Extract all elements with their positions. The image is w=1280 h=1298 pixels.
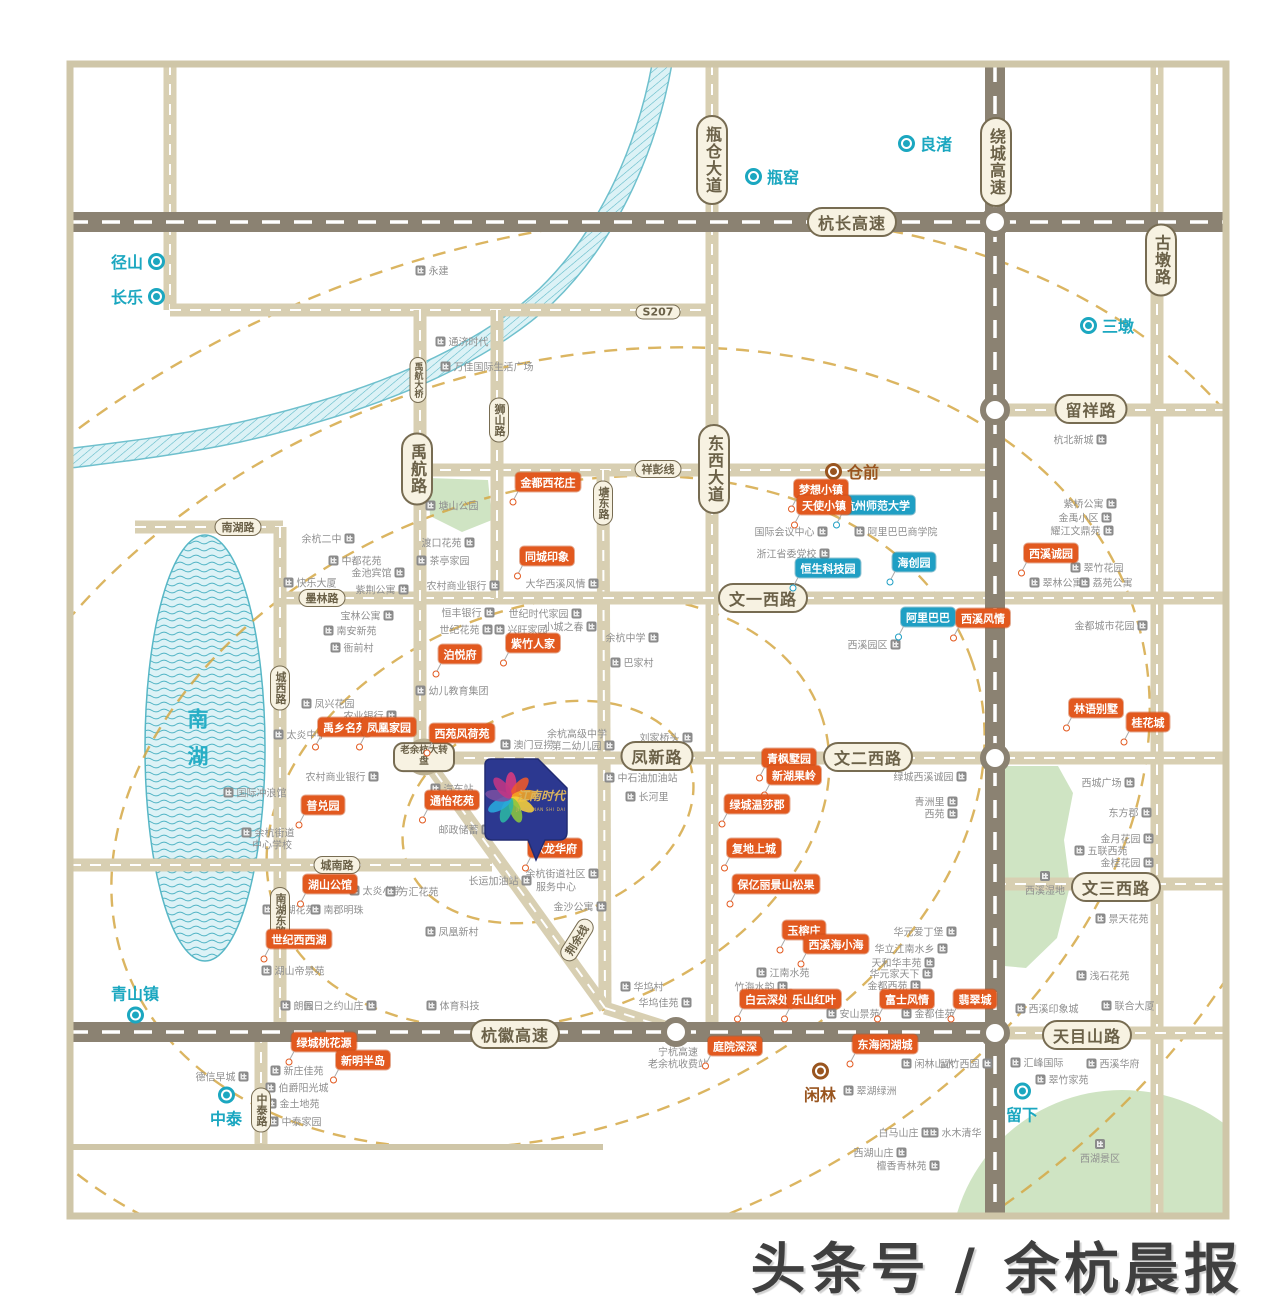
building-icon [386, 886, 396, 896]
town-name: 长乐 [111, 284, 143, 308]
poi-name: 第二幼儿园 [552, 738, 602, 753]
poi-name: 渡口花苑 [422, 535, 462, 550]
poi-label: 华坞村 [621, 979, 664, 994]
road-label: 塘东路 [593, 481, 613, 526]
poi-label: 西苑 [925, 806, 958, 821]
poi-label: 巴家村 [611, 655, 654, 670]
building-icon [384, 610, 394, 620]
building-icon [572, 608, 582, 618]
poi-label: 绿城西溪诚园 [894, 769, 967, 784]
poi-label: 紫桥公寓 [1064, 496, 1117, 511]
building-icon [683, 732, 693, 742]
poi-name: 翠林公寓 [1043, 575, 1083, 590]
poi-label: 东方郡 [1109, 805, 1152, 820]
community-label: 乐山红叶 [787, 990, 841, 1009]
road-label: S207 [636, 305, 681, 320]
building-icon [416, 685, 426, 695]
building-icon [395, 567, 405, 577]
town-name: 三墩 [1102, 313, 1134, 337]
building-icon [682, 997, 692, 1007]
poi-name: 老余杭收费站 [648, 1056, 708, 1071]
building-icon [929, 1127, 939, 1137]
community-label: 天使小镇 [797, 496, 851, 515]
poi-name: 永建 [429, 263, 449, 278]
building-icon [757, 967, 767, 977]
road-label: 杭徽高速 [470, 1019, 560, 1049]
road-label: 绕城高速 [980, 117, 1012, 207]
poi-name: 凤凰新村 [439, 924, 479, 939]
poi-label: 金土地苑 [267, 1096, 320, 1111]
poi-name: 浅石花苑 [1090, 968, 1130, 983]
community-label: 普兑园 [302, 796, 345, 815]
poi-name: 小城之春 [544, 619, 584, 634]
poi-name: 阿里巴巴商学院 [868, 524, 938, 539]
poi-name: 服务中心 [536, 879, 576, 894]
road-label: 中泰路 [251, 1088, 271, 1133]
town-label: 瓶窑 [745, 164, 799, 188]
building-icon [271, 1065, 281, 1075]
building-icon [399, 584, 409, 594]
building-icon [649, 632, 659, 642]
poi-label: 金池宾馆 [352, 565, 405, 580]
poi-name: 巴家村 [624, 655, 654, 670]
poi-name: 景天花苑 [1109, 911, 1149, 926]
building-icon [855, 526, 865, 536]
building-icon [589, 578, 599, 588]
community-label: 绿城温莎郡 [725, 795, 790, 814]
poi-name: 方汇花苑 [399, 884, 439, 899]
poi-name: 檀香青林苑 [877, 1158, 927, 1173]
town-label: 青山镇 [111, 981, 159, 1024]
community-label: 林语别墅 [1069, 699, 1123, 718]
building-icon [324, 625, 334, 635]
building-icon [948, 808, 958, 818]
poi-label: 耀江文鼎苑 [1051, 523, 1114, 538]
poi-name: 假日之约山庄 [304, 998, 364, 1013]
town-dot-icon [1080, 317, 1097, 334]
poi-name: 联合大厦 [1115, 998, 1155, 1013]
poi-name: 华元爱丁堡 [894, 924, 944, 939]
community-label: 新湖果岭 [767, 766, 821, 785]
poi-name: 金桂花园 [1101, 855, 1141, 870]
building-icon [820, 548, 830, 558]
building-icon [1138, 620, 1148, 630]
poi-label: 翠林公寓 [1030, 575, 1083, 590]
community-label: 金都西花庄 [516, 473, 581, 492]
building-icon [597, 901, 607, 911]
building-icon [621, 981, 631, 991]
poi-name: 余杭中学 [606, 630, 646, 645]
poi-label: 中心学校 [252, 837, 292, 852]
poi-label: 金都城市花园 [1075, 618, 1148, 633]
poi-name: 水木清华 [942, 1125, 982, 1140]
road-label: 东西大道 [698, 424, 730, 514]
road-label: 文三西路 [1071, 872, 1161, 902]
road-label: 狮山路 [489, 398, 509, 443]
poi-label: 伯爵阳光城 [266, 1080, 329, 1095]
project-name: 江南时代 [517, 789, 567, 803]
watermark: 头条号 / 余杭晨报 [0, 1224, 1244, 1298]
poi-name: 西城广场 [1082, 775, 1122, 790]
poi-name: 南郡明珠 [324, 902, 364, 917]
label-layer: 杭长高速S207绕城高速瓶仓大道古墩路留祥路禹航大桥禹航路狮山路祥彭线东西大道塘… [0, 0, 1280, 1298]
community-label: 东海闲湖城 [853, 1035, 918, 1054]
building-icon [1075, 845, 1085, 855]
community-label: 保亿丽景山松果 [733, 875, 820, 894]
building-icon [495, 624, 505, 634]
poi-name: 中石油加油站 [618, 770, 678, 785]
building-icon [490, 580, 500, 590]
poi-name: 衙前村 [344, 640, 374, 655]
building-icon [1102, 512, 1112, 522]
poi-label: 幼儿教育集团 [416, 683, 489, 698]
building-icon [1107, 498, 1117, 508]
poi-label: 中泰家园 [269, 1114, 322, 1129]
road-label: 荆余线 [557, 915, 597, 964]
poi-label: 白马山庄 [879, 1125, 932, 1140]
town-label: 中泰 [210, 1087, 242, 1130]
poi-label: 西溪印象城 [1016, 1001, 1079, 1016]
building-icon [329, 555, 339, 565]
building-icon [436, 336, 446, 346]
poi-label: 水木清华 [929, 1125, 982, 1140]
poi-name: 邮政储蓄 [439, 822, 479, 837]
building-icon [948, 796, 958, 806]
road-label: 墨林路 [299, 589, 346, 607]
road-label: 杭长高速 [807, 207, 897, 237]
building-icon [427, 1000, 437, 1010]
poi-name: 农村商业银行 [427, 578, 487, 593]
poi-name: 农村商业银行 [306, 769, 366, 784]
poi-label: 檀香青林苑 [877, 1158, 940, 1173]
town-name: 良渚 [920, 131, 952, 155]
poi-name: 华坞佳苑 [639, 995, 679, 1010]
project-subtitle: JIANG NAN SHI DAI [515, 807, 565, 812]
poi-label: 方汇花苑 [386, 884, 439, 899]
building-icon [1125, 777, 1135, 787]
road-label: 瓶仓大道 [696, 115, 728, 205]
poi-label: 渡口花苑 [422, 535, 475, 550]
poi-label: 小城之春 [544, 619, 597, 634]
poi-name: 金池宾馆 [352, 565, 392, 580]
poi-label: 浅石花苑 [1077, 968, 1130, 983]
road-label: 祥彭线 [635, 460, 682, 478]
building-icon [938, 943, 948, 953]
road-label: 凤新路 [620, 741, 693, 771]
building-icon [1096, 913, 1106, 923]
poi-name: 西溪华府 [1100, 1056, 1140, 1071]
poi-name: 华坞村 [634, 979, 664, 994]
poi-name: 体育科技 [440, 998, 480, 1013]
project-marker: 江南时代 JIANG NAN SHI DAI [483, 756, 575, 866]
poi-label: 体育科技 [427, 998, 480, 1013]
town-name: 仓前 [847, 459, 879, 483]
poi-name: 湖山帝景苑 [275, 963, 325, 978]
town-name: 中泰 [210, 1106, 242, 1130]
community-label: 翡翠城 [954, 990, 997, 1009]
poi-name: 杭北新城 [1054, 432, 1094, 447]
poi-name: 中心学校 [252, 837, 292, 852]
poi-name: 通济时代 [449, 334, 489, 349]
town-label: 良渚 [898, 131, 952, 155]
building-icon [611, 657, 621, 667]
poi-label: 翠竹家苑 [1036, 1072, 1089, 1087]
poi-name: 西溪湿地 [1025, 882, 1065, 897]
building-icon [302, 698, 312, 708]
poi-label: 汇峰国际 [1011, 1055, 1064, 1070]
building-icon [417, 555, 427, 565]
poi-name: 江南水苑 [770, 965, 810, 980]
poi-label: 留竹西园 [940, 1056, 993, 1071]
poi-name: 恒丰银行 [442, 605, 482, 620]
building-icon [1144, 857, 1154, 867]
building-icon [224, 787, 234, 797]
poi-name: 国际会议中心 [755, 524, 815, 539]
poi-name: 塘山公园 [439, 498, 479, 513]
poi-label: 荔苑公寓 [1080, 575, 1133, 590]
poi-label: 农村商业银行 [306, 769, 379, 784]
poi-name: 长河里 [639, 789, 669, 804]
poi-label: 恒丰银行 [442, 605, 495, 620]
poi-label: 德信早城 [196, 1069, 249, 1084]
town-label: 三墩 [1080, 313, 1134, 337]
poi-label: 阿里巴巴商学院 [855, 524, 938, 539]
building-icon [947, 926, 957, 936]
poi-label: 长河里 [626, 789, 669, 804]
town-dot-icon [217, 1087, 234, 1104]
poi-label: 凤凰新村 [426, 924, 479, 939]
poi-name: 大华西溪风情 [526, 576, 586, 591]
poi-label: 快乐大厦 [284, 575, 337, 590]
building-icon [589, 868, 599, 878]
town-label: 闲林 [804, 1063, 836, 1106]
building-icon [1087, 1058, 1097, 1068]
community-label: 新明半岛 [336, 1051, 390, 1070]
building-icon [262, 965, 272, 975]
town-dot-icon [148, 288, 165, 305]
poi-name: 金都城市花园 [1075, 618, 1135, 633]
building-icon [626, 791, 636, 801]
building-icon [441, 361, 451, 371]
poi-label: 西溪园区 [848, 637, 901, 652]
community-label: 庭院深深 [708, 1037, 762, 1056]
building-icon [501, 739, 511, 749]
poi-label: 紫荆公寓 [356, 582, 409, 597]
poi-label: 茶亭家园 [417, 553, 470, 568]
landmark-label: 恒生科技园 [796, 559, 861, 578]
town-label: 长乐 [111, 284, 165, 308]
poi-name: 西溪印象城 [1029, 1001, 1079, 1016]
town-name: 青山镇 [111, 981, 159, 1005]
building-icon [1102, 1000, 1112, 1010]
town-label: 径山 [111, 249, 165, 273]
building-icon [605, 740, 615, 750]
poi-label: 南郡明珠 [311, 902, 364, 917]
poi-name: 翠湖绿洲 [857, 1083, 897, 1098]
poi-name: 白马山庄 [879, 1125, 919, 1140]
building-icon [483, 624, 493, 634]
poi-label: 万佳国际生活广场 [441, 359, 534, 374]
community-label: 西溪海小海 [804, 935, 869, 954]
poi-name: 翠竹花园 [1084, 560, 1124, 575]
building-icon [369, 771, 379, 781]
poi-name: 紫荆公寓 [356, 582, 396, 597]
poi-name: 快乐大厦 [297, 575, 337, 590]
poi-label: 华坞佳苑 [639, 995, 692, 1010]
road-label: 城西路 [270, 666, 290, 711]
poi-name: 国际冲浪馆 [237, 785, 287, 800]
poi-name: 世纪花苑 [440, 622, 480, 637]
poi-name: 耀江文鼎苑 [1051, 523, 1101, 538]
building-icon [911, 980, 921, 990]
poi-label: 世纪花苑 [440, 622, 493, 637]
poi-label: 通济时代 [436, 334, 489, 349]
building-icon [897, 1147, 907, 1157]
community-label: 绿城桃花源 [292, 1033, 357, 1052]
road-label: 城南路 [314, 856, 361, 874]
community-label: 西溪风情 [956, 609, 1010, 628]
town-name: 径山 [111, 249, 143, 273]
poi-label: 老余杭收费站 [648, 1056, 708, 1071]
building-icon [281, 1000, 291, 1010]
community-label: 凤凰家园 [362, 718, 416, 737]
building-icon [242, 827, 252, 837]
building-icon [983, 1058, 993, 1068]
building-icon [844, 1085, 854, 1095]
poi-name: 德信早城 [196, 1069, 236, 1084]
road-label: 古墩路 [1145, 224, 1177, 297]
building-icon [957, 771, 967, 781]
poi-name: 西溪园区 [848, 637, 888, 652]
town-dot-icon [148, 253, 165, 270]
building-icon [465, 537, 475, 547]
building-icon [1016, 1003, 1026, 1013]
road-label: 文二西路 [823, 742, 913, 772]
poi-label: 中石油加油站 [605, 770, 678, 785]
landmark-label: 海创园 [893, 553, 936, 572]
building-icon [239, 1071, 249, 1081]
poi-label: 湖山帝景苑 [262, 963, 325, 978]
poi-label: 长运加油站 [469, 873, 532, 888]
building-icon [274, 729, 284, 739]
community-label: 泊悦府 [439, 645, 482, 664]
poi-name: 汇峰国际 [1024, 1055, 1064, 1070]
community-label: 世纪西西湖 [267, 930, 332, 949]
town-name: 留下 [1006, 1102, 1038, 1126]
poi-label: 西溪华府 [1087, 1056, 1140, 1071]
community-label: 桂花城 [1127, 713, 1170, 732]
town-name: 瓶窑 [767, 164, 799, 188]
community-label: 湖山公馆 [303, 875, 357, 894]
community-label: 西溪诚园 [1024, 544, 1078, 563]
building-icon [331, 642, 341, 652]
poi-name: 留竹西园 [940, 1056, 980, 1071]
poi-label: 西溪湿地 [1025, 871, 1065, 897]
building-icon [367, 1000, 377, 1010]
town-dot-icon [811, 1063, 828, 1080]
road-label: 天目山路 [1042, 1020, 1132, 1050]
building-icon [485, 607, 495, 617]
community-label: 紫竹人家 [506, 634, 560, 653]
poi-label: 余杭二中 [302, 531, 355, 546]
poi-name: 万佳国际生活广场 [454, 359, 534, 374]
poi-name: 荔苑公寓 [1093, 575, 1133, 590]
poi-name: 西苑 [925, 806, 945, 821]
poi-label: 农村商业银行 [427, 578, 500, 593]
poi-label: 金桂花园 [1101, 855, 1154, 870]
poi-label: 翠湖绿洲 [844, 1083, 897, 1098]
town-dot-icon [745, 168, 762, 185]
town-name: 闲林 [804, 1082, 836, 1106]
poi-label: 华立江南水乡 [875, 941, 948, 956]
poi-label: 联合大厦 [1102, 998, 1155, 1013]
town-label: 留下 [1006, 1083, 1038, 1126]
building-icon [1030, 577, 1040, 587]
poi-label: 衙前村 [331, 640, 374, 655]
building-icon [923, 968, 933, 978]
community-label: 白云深处 [740, 990, 794, 1009]
poi-name: 紫桥公寓 [1064, 496, 1104, 511]
poi-label: 西湖景区 [1080, 1139, 1120, 1165]
poi-label: 景天花苑 [1096, 911, 1149, 926]
poi-name: 幼儿教育集团 [429, 683, 489, 698]
building-icon [1077, 970, 1087, 980]
building-icon [1104, 525, 1114, 535]
road-label: 老余杭大转盘 [393, 742, 455, 772]
building-icon [605, 772, 615, 782]
building-icon [1040, 871, 1050, 881]
building-icon [891, 639, 901, 649]
poi-name: 伯爵阳光城 [279, 1080, 329, 1095]
poi-label: 翠竹花园 [1071, 560, 1124, 575]
building-icon [1142, 807, 1152, 817]
community-label: 富士风情 [880, 990, 934, 1009]
building-icon [902, 1058, 912, 1068]
poi-label: 国际冲浪馆 [224, 785, 287, 800]
poi-label: 服务中心 [536, 879, 576, 894]
road-label: 南湖路 [215, 518, 262, 536]
building-icon [345, 533, 355, 543]
building-icon [1080, 577, 1090, 587]
building-icon [1097, 434, 1107, 444]
building-icon [930, 1160, 940, 1170]
poi-name: 茶亭家园 [430, 553, 470, 568]
poi-label: 假日之约山庄 [304, 998, 377, 1013]
poi-name: 金土地苑 [280, 1096, 320, 1111]
building-icon [827, 1008, 837, 1018]
building-icon [416, 265, 426, 275]
poi-label: 新庄佳苑 [271, 1063, 324, 1078]
building-icon [426, 926, 436, 936]
poi-label: 宝林公寓 [341, 608, 394, 623]
poi-label: 第二幼儿园 [552, 738, 615, 753]
building-icon [1095, 1139, 1105, 1149]
poi-name: 翠竹家苑 [1049, 1072, 1089, 1087]
poi-name: 中泰家园 [282, 1114, 322, 1129]
building-icon [284, 577, 294, 587]
poi-label: 金沙公寓 [554, 899, 607, 914]
poi-label: 杭北新城 [1054, 432, 1107, 447]
poi-label: 塘山公园 [426, 498, 479, 513]
poi-name: 宝林公寓 [341, 608, 381, 623]
lake-name: 南湖 [182, 708, 212, 782]
building-icon [1011, 1057, 1021, 1067]
poi-label: 西城广场 [1082, 775, 1135, 790]
poi-name: 西湖景区 [1080, 1150, 1120, 1165]
poi-name: 华立江南水乡 [875, 941, 935, 956]
road-label: 禹航大桥 [410, 357, 427, 403]
poi-name: 余杭二中 [302, 531, 342, 546]
